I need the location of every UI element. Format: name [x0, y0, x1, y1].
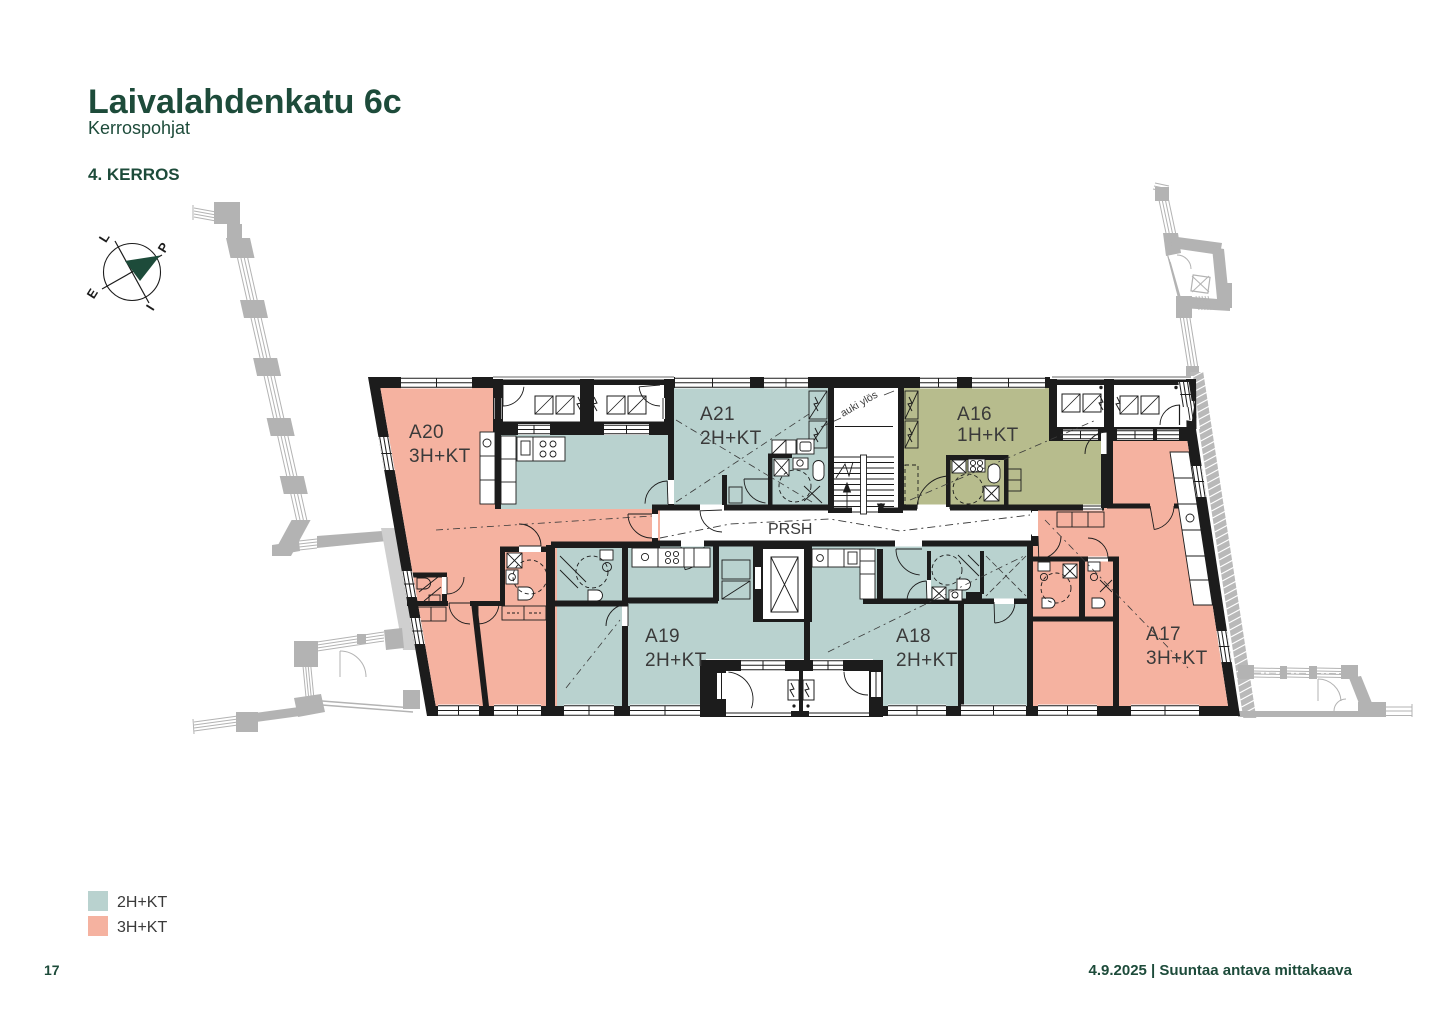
- svg-text:A21: A21: [700, 404, 735, 425]
- svg-text:3H+KT: 3H+KT: [409, 446, 471, 467]
- svg-text:PRSH: PRSH: [768, 521, 812, 538]
- svg-text:3H+KT: 3H+KT: [117, 919, 167, 936]
- svg-text:1H+KT: 1H+KT: [957, 425, 1019, 446]
- svg-text:Kerrospohjat: Kerrospohjat: [88, 118, 190, 138]
- svg-text:3H+KT: 3H+KT: [1146, 648, 1208, 669]
- svg-text:2H+KT: 2H+KT: [700, 428, 762, 449]
- svg-text:A20: A20: [409, 422, 444, 443]
- svg-text:2H+KT: 2H+KT: [117, 894, 167, 911]
- svg-text:A17: A17: [1146, 624, 1181, 645]
- svg-text:2H+KT: 2H+KT: [645, 650, 707, 671]
- svg-text:Laivalahdenkatu 6c: Laivalahdenkatu 6c: [88, 83, 402, 121]
- svg-text:A18: A18: [896, 626, 931, 647]
- svg-text:4. KERROS: 4. KERROS: [88, 165, 180, 184]
- svg-text:17: 17: [44, 962, 60, 978]
- svg-text:4.9.2025 | Suuntaa antava mitt: 4.9.2025 | Suuntaa antava mittakaava: [1088, 962, 1352, 979]
- svg-text:A16: A16: [957, 404, 992, 425]
- svg-text:2H+KT: 2H+KT: [896, 650, 958, 671]
- svg-text:A19: A19: [645, 626, 680, 647]
